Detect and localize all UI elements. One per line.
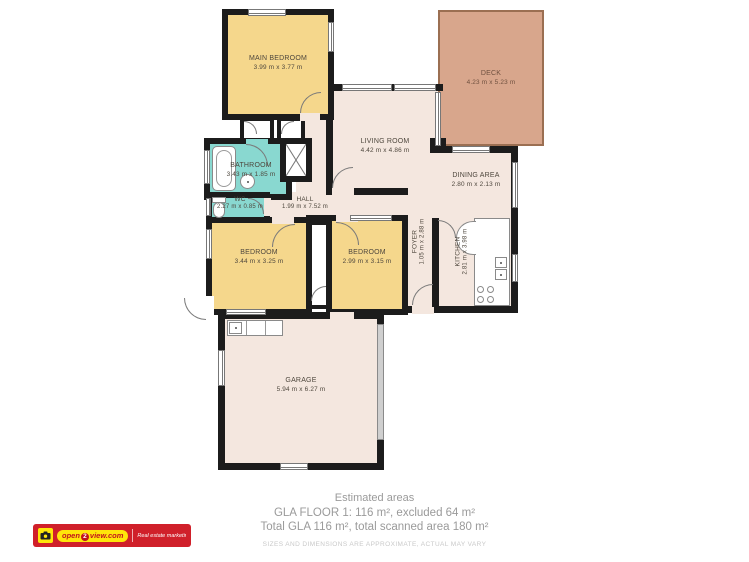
- room-name: LIVING ROOM: [340, 138, 430, 147]
- window: [350, 215, 392, 221]
- room-dims: 3.44 m x 3.25 m: [214, 258, 304, 267]
- label-bedroom-right: BEDROOM 2.99 m x 3.15 m: [322, 249, 412, 266]
- label-foyer: FOYER 1.05 m x 2.88 m: [412, 207, 427, 277]
- door-arc: [184, 298, 206, 320]
- laundry-sink: [229, 322, 242, 334]
- sliding-door: [394, 84, 436, 91]
- room-name: BEDROOM: [322, 249, 412, 258]
- logo-tagline: Real estate marketing solutions: [137, 533, 186, 539]
- window: [226, 309, 266, 315]
- sliding-door: [452, 146, 490, 153]
- room-dims: 1.99 m x 7.52 m: [270, 204, 340, 212]
- room-name: BATHROOM: [211, 162, 291, 171]
- wall: [354, 188, 408, 195]
- room-bedroom-left: [206, 217, 312, 315]
- logo-text-num: 2: [81, 533, 89, 541]
- label-wc: WC 2.27 m x 0.85 m: [205, 196, 275, 211]
- wall: [434, 306, 518, 313]
- floor-plan: MAIN BEDROOM 3.99 m x 3.77 m DECK 4.23 m…: [0, 0, 749, 562]
- label-bedroom-left: BEDROOM 3.44 m x 3.25 m: [214, 249, 304, 266]
- label-deck: DECK 4.23 m x 5.23 m: [446, 70, 536, 87]
- summary-title: Estimated areas: [0, 492, 749, 504]
- label-living-room: LIVING ROOM 4.42 m x 4.86 m: [340, 138, 430, 155]
- door-opening: [272, 217, 294, 224]
- logo-wordmark: open2view.com: [57, 530, 128, 542]
- window: [280, 463, 308, 470]
- door-opening: [412, 307, 434, 314]
- stove-burner: [477, 286, 484, 293]
- room-dims: 2.99 m x 3.15 m: [322, 258, 412, 267]
- kitchen-sink: [495, 257, 507, 268]
- label-hall: HALL 1.99 m x 7.52 m: [270, 196, 340, 211]
- door-opening: [330, 312, 354, 320]
- room-dims: 2.80 m x 2.13 m: [431, 181, 521, 190]
- room-dims: 3.43 m x 1.85 m: [211, 171, 291, 180]
- room-name: KITCHEN: [455, 217, 463, 287]
- window: [328, 22, 334, 52]
- label-main-bedroom: MAIN BEDROOM 3.99 m x 3.77 m: [233, 55, 323, 72]
- label-bathroom: BATHROOM 3.43 m x 1.85 m: [211, 162, 291, 179]
- camera-icon: [38, 528, 53, 543]
- window: [512, 254, 518, 282]
- deck-railing: [435, 92, 441, 146]
- label-garage: GARAGE 5.94 m x 6.27 m: [256, 377, 346, 394]
- window: [248, 9, 286, 16]
- window: [204, 150, 210, 184]
- room-name: MAIN BEDROOM: [233, 55, 323, 64]
- stove-burner: [487, 296, 494, 303]
- room-dims: 2.81 m x 3.98 m: [462, 217, 470, 287]
- camera-glyph: [40, 531, 51, 540]
- kitchen-sink: [495, 269, 507, 280]
- room-dims: 4.42 m x 4.86 m: [340, 147, 430, 156]
- window: [342, 84, 392, 91]
- room-name: DINING AREA: [431, 172, 521, 181]
- room-dims: 2.27 m x 0.85 m: [205, 204, 275, 212]
- room-dims: 3.99 m x 3.77 m: [233, 64, 323, 73]
- room-name: WC: [205, 196, 275, 204]
- bench-divider: [246, 321, 247, 335]
- open2view-logo[interactable]: open2view.com Real estate marketing solu…: [33, 524, 191, 547]
- room-dims: 4.23 m x 5.23 m: [446, 79, 536, 88]
- logo-divider: [132, 529, 133, 542]
- garage-door: [377, 324, 384, 440]
- room-name: FOYER: [412, 207, 420, 277]
- drain-dot: [235, 327, 237, 329]
- logo-text-post: view.com: [90, 531, 124, 540]
- room-name: HALL: [270, 196, 340, 204]
- window: [206, 229, 212, 259]
- door-opening: [300, 113, 320, 121]
- label-dining-area: DINING AREA 2.80 m x 2.13 m: [431, 172, 521, 189]
- drain-dot: [500, 274, 502, 276]
- window: [218, 350, 225, 386]
- room-name: DECK: [446, 70, 536, 79]
- stove-burner: [477, 296, 484, 303]
- floor-plan-page: MAIN BEDROOM 3.99 m x 3.77 m DECK 4.23 m…: [0, 0, 749, 562]
- room-dims: 5.94 m x 6.27 m: [256, 386, 346, 395]
- room-dims: 1.05 m x 2.88 m: [419, 207, 427, 277]
- room-name: BEDROOM: [214, 249, 304, 258]
- bench-divider: [265, 321, 266, 335]
- logo-text-pre: open: [62, 531, 80, 540]
- label-kitchen: KITCHEN 2.81 m x 3.98 m: [455, 217, 470, 287]
- stove-burner: [487, 286, 494, 293]
- drain-dot: [247, 181, 249, 183]
- drain-dot: [500, 262, 502, 264]
- door-opening: [332, 188, 354, 196]
- room-name: GARAGE: [256, 377, 346, 386]
- summary-gla-floor: GLA FLOOR 1: 116 m², excluded 64 m²: [0, 506, 749, 520]
